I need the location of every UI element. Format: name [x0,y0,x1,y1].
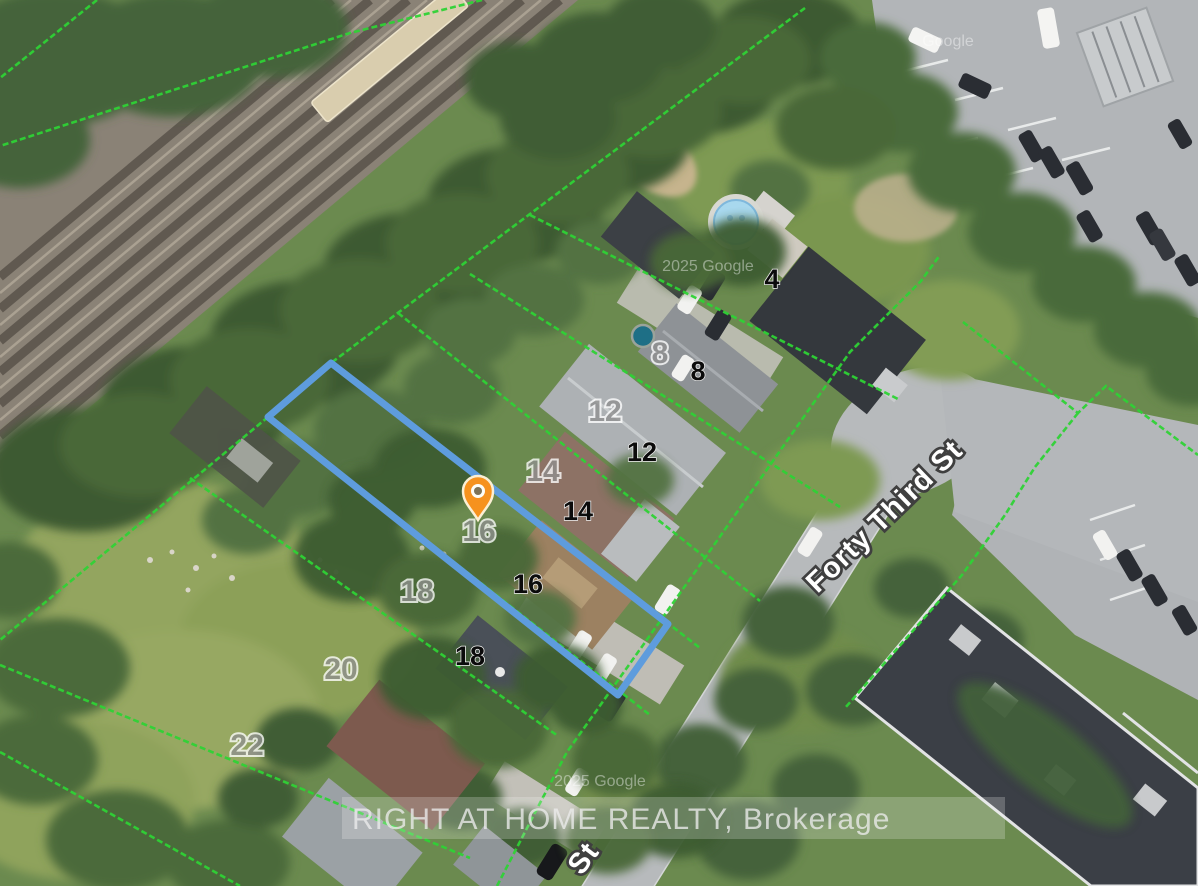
pin-center-dot [474,487,482,495]
address-label: 20 [324,653,357,686]
parcel-number: 12 [627,437,657,467]
parcel-number: 18 [455,641,485,671]
google-attribution: 2025 Google [662,258,754,275]
address-label: 14 [526,455,560,488]
google-attribution: Google [922,33,974,50]
brokerage-watermark: RIGHT AT HOME REALTY, Brokerage [342,797,1005,839]
google-attribution: 2025 Google [554,773,646,790]
address-label: 12 [588,395,621,428]
satellite-map-view[interactable]: 8 12 14 16 18 20 22 4 8 12 14 16 18 Fort… [0,0,1198,886]
address-label: 8 [652,337,669,370]
address-label: 18 [400,575,433,608]
parcel-number: 8 [690,356,705,386]
parcel-number: 4 [764,264,779,294]
parcel-number: 14 [563,496,593,526]
map-canvas[interactable]: 8 12 14 16 18 20 22 4 8 12 14 16 18 Fort… [0,0,1198,886]
watermark-text: RIGHT AT HOME REALTY, Brokerage [352,803,890,836]
parcel-number: 16 [513,569,543,599]
address-label: 22 [230,729,263,762]
